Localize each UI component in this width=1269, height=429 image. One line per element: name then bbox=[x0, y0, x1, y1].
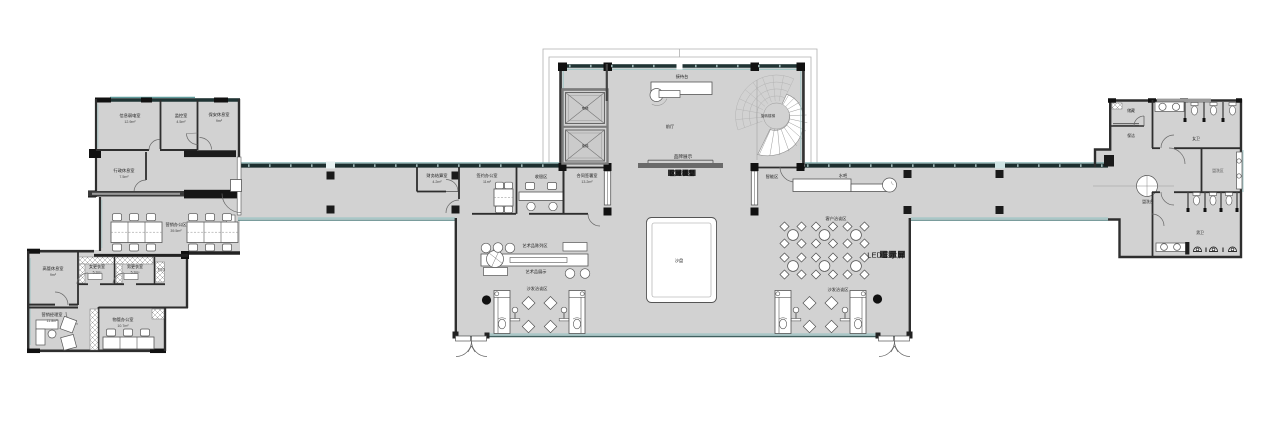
svg-text:7.5m²: 7.5m² bbox=[119, 175, 129, 179]
svg-text:品牌展示: 品牌展示 bbox=[674, 153, 693, 160]
svg-text:水吧: 水吧 bbox=[839, 172, 848, 178]
svg-text:艺术品展示: 艺术品展示 bbox=[526, 268, 547, 275]
svg-text:高管休息室: 高管休息室 bbox=[43, 265, 64, 272]
svg-text:客户洽谈区: 客户洽谈区 bbox=[826, 215, 847, 222]
svg-text:监控室: 监控室 bbox=[175, 112, 188, 119]
svg-text:9m²: 9m² bbox=[50, 273, 57, 277]
svg-text:信息弱电室: 信息弱电室 bbox=[120, 112, 141, 119]
svg-text:保安休息室: 保安休息室 bbox=[209, 111, 230, 118]
svg-text:电梯: 电梯 bbox=[582, 106, 589, 111]
svg-text:沙发洽谈区: 沙发洽谈区 bbox=[527, 285, 548, 292]
svg-text:行政休息室: 行政休息室 bbox=[114, 167, 135, 174]
svg-text:5.2m²: 5.2m² bbox=[131, 271, 141, 275]
svg-text:营销经理室: 营销经理室 bbox=[42, 311, 63, 318]
svg-text:前厅: 前厅 bbox=[666, 123, 674, 130]
svg-text:盥洗区: 盥洗区 bbox=[1212, 168, 1224, 173]
svg-text:储藏: 储藏 bbox=[1127, 108, 1135, 113]
svg-text:男卫: 男卫 bbox=[1196, 230, 1204, 235]
svg-text:收银区: 收银区 bbox=[535, 173, 548, 180]
svg-text:4.2m²: 4.2m² bbox=[432, 180, 442, 184]
svg-text:旋转楼梯: 旋转楼梯 bbox=[761, 113, 776, 118]
svg-text:9m²: 9m² bbox=[216, 119, 223, 123]
svg-text:接待台: 接待台 bbox=[676, 73, 689, 80]
svg-text:LED显示屏: LED显示屏 bbox=[867, 251, 905, 260]
svg-text:11m²: 11m² bbox=[483, 180, 492, 184]
svg-text:打印: 打印 bbox=[157, 267, 165, 272]
svg-text:女卫: 女卫 bbox=[1192, 136, 1200, 141]
svg-text:10.7m²: 10.7m² bbox=[117, 324, 129, 328]
svg-text:39.5m²: 39.5m² bbox=[170, 229, 182, 233]
svg-text:5.2m²: 5.2m² bbox=[93, 271, 103, 275]
svg-text:财务结算室: 财务结算室 bbox=[427, 172, 448, 179]
svg-text:11.8m²: 11.8m² bbox=[47, 319, 59, 323]
svg-text:物管办公室: 物管办公室 bbox=[113, 316, 134, 323]
svg-text:保洁: 保洁 bbox=[1127, 133, 1135, 138]
svg-text:营销办公区: 营销办公区 bbox=[166, 221, 187, 228]
svg-text:智能区: 智能区 bbox=[766, 173, 779, 180]
svg-text:沙盘: 沙盘 bbox=[675, 257, 683, 263]
svg-text:12.9m²: 12.9m² bbox=[124, 120, 136, 124]
svg-text:区域模型: 区域模型 bbox=[670, 170, 696, 178]
svg-text:签约办公室: 签约办公室 bbox=[477, 172, 498, 179]
svg-text:男更衣室: 男更衣室 bbox=[127, 263, 143, 269]
svg-text:合同签署室: 合同签署室 bbox=[577, 172, 598, 179]
svg-text:13.2m²: 13.2m² bbox=[581, 180, 593, 184]
svg-text:4.5m²: 4.5m² bbox=[176, 120, 186, 124]
svg-text:沙发洽谈区: 沙发洽谈区 bbox=[828, 286, 849, 293]
svg-text:艺术品陈列区: 艺术品陈列区 bbox=[522, 242, 547, 249]
svg-text:电梯: 电梯 bbox=[582, 143, 589, 148]
svg-text:女更衣室: 女更衣室 bbox=[89, 263, 105, 269]
